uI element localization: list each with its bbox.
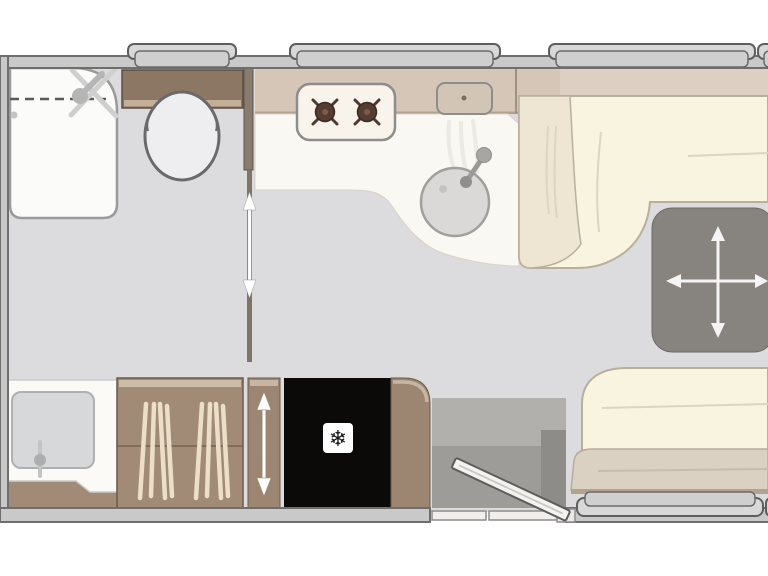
washbasin-unit (8, 380, 117, 508)
freezer-snowflake-glyph: ❄ (329, 427, 347, 452)
burner-icon (313, 100, 337, 124)
entrance-step (432, 398, 566, 508)
free-standing-table (652, 208, 768, 352)
wardrobe (117, 378, 243, 510)
top-window-2 (290, 44, 500, 67)
fridge-freezer-unit: ❄ (248, 378, 430, 510)
hob-two-burner (297, 84, 395, 140)
bottom-window (577, 492, 768, 516)
toilet (145, 92, 219, 180)
drain-dot (11, 112, 18, 119)
rear-bench-seat (571, 368, 768, 494)
caravan-floorplan: ❄ (0, 0, 768, 576)
washroom-partition-wall (244, 56, 253, 170)
burner-icon (355, 100, 379, 124)
unit-divider-line (515, 68, 517, 114)
top-window-1 (128, 44, 236, 67)
door-threshold (432, 511, 486, 520)
freezer-snowflake-icon: ❄ (323, 423, 353, 453)
sofa-side-cushion (519, 96, 581, 268)
washbasin (12, 392, 94, 468)
shower-tray (10, 68, 117, 218)
bottom-wall-left (0, 508, 430, 522)
left-wall (0, 56, 8, 522)
top-window-3 (549, 44, 755, 67)
fridge-side-panel (391, 378, 430, 510)
wall-cupboard (437, 83, 492, 114)
